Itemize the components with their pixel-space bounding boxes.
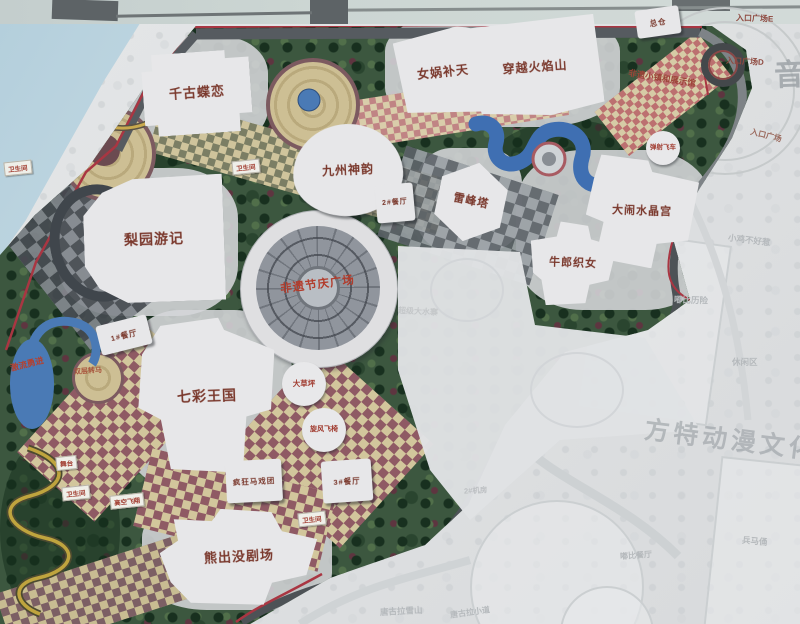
building-label-rest1: 1#餐厅 bbox=[110, 327, 139, 342]
map-text-entrance-e: 入口广场E bbox=[736, 12, 774, 24]
faded-text-jifang2: 2#机房 bbox=[464, 484, 488, 496]
map-text-jiliuyongjin: 激流勇进 bbox=[9, 354, 45, 374]
park-map-sign-photo: 千古蝶恋女娲补天穿越火焰山九州神韵梨园游记七彩王国熊出没剧场大闹水晶宫牛郎织女雷… bbox=[0, 0, 800, 624]
map-text-entrance-main: 入口广场 bbox=[749, 126, 783, 144]
building-label-xiong: 熊出没剧场 bbox=[204, 547, 275, 566]
building-rest1: 1#餐厅 bbox=[95, 314, 153, 356]
building-label-leifeng: 雷峰塔 bbox=[452, 192, 490, 212]
faded-text-tanggula-mt: 唐古拉雪山 bbox=[380, 604, 423, 618]
ride-circle-tanshefeiche: 弹射飞车 bbox=[646, 131, 680, 165]
building-label-shuijing: 大闹水晶宫 bbox=[612, 204, 672, 219]
building-label-zongcang: 总仓 bbox=[649, 16, 667, 27]
faded-text-xiuxianqu: 休闲区 bbox=[732, 356, 758, 368]
watermark-phase2-watermark: 方特动漫文化科技 bbox=[643, 410, 800, 474]
building-label-qicai: 七彩王国 bbox=[177, 387, 238, 406]
building-label-qiangu: 千古蝶恋 bbox=[169, 83, 226, 102]
building-liyuan: 梨园游记 bbox=[82, 174, 226, 305]
building-rest2: 2#餐厅 bbox=[374, 182, 415, 223]
building-zongcang: 总仓 bbox=[634, 5, 681, 39]
building-fengkuang: 疯狂马戏团 bbox=[225, 459, 283, 504]
ride-label-tanshefeiche: 弹射飞车 bbox=[650, 144, 676, 151]
facility-tag-gaokongfeixiang: 高空飞翔 bbox=[109, 492, 144, 509]
faded-text-dubi-restaurant: 嘟比餐厅 bbox=[620, 549, 653, 562]
building-rest3: 3#餐厅 bbox=[321, 458, 374, 503]
map-text-entrance-d: 入口广场D bbox=[726, 55, 764, 68]
faded-text-xiaoji: 小鸡不好惹 bbox=[727, 231, 771, 248]
ride-label-dacaoping: 大草坪 bbox=[293, 380, 316, 388]
facility-tag-weishengjian-3: 卫生间 bbox=[61, 485, 90, 502]
building-label-chuanyue: 穿越火焰山 bbox=[502, 58, 568, 77]
building-label-liyuan: 梨园游记 bbox=[124, 230, 185, 249]
building-label-rest2: 2#餐厅 bbox=[382, 198, 408, 209]
ride-circle-xuanfengfeiyi: 旋风飞椅 bbox=[302, 408, 346, 452]
building-label-rest3: 3#餐厅 bbox=[333, 476, 361, 487]
map-text-feiyi-plaza: 非遗节庆广场 bbox=[279, 271, 355, 296]
building-xiong: 熊出没剧场 bbox=[158, 504, 321, 610]
facility-tag-weishengjian-2: 卫生间 bbox=[231, 159, 260, 176]
watermark-yin-char: 音 bbox=[773, 49, 800, 94]
building-qicai: 七彩王国 bbox=[135, 316, 278, 477]
faded-text-tanggula-path: 唐古拉小道 bbox=[449, 604, 490, 620]
map-text-shuangcengzhuanma: 双层转马 bbox=[74, 365, 103, 377]
facility-tag-weishengjian-1: 卫生间 bbox=[3, 160, 32, 177]
facility-tag-wutai: 舞台 bbox=[55, 455, 77, 471]
building-qiangu: 千古蝶恋 bbox=[140, 48, 253, 137]
facility-tag-weishengjian-4: 卫生间 bbox=[297, 511, 326, 528]
building-chuanyue: 穿越火焰山 bbox=[465, 13, 606, 120]
faded-text-dubi-adventure: 嘟比历险 bbox=[674, 293, 708, 306]
ride-label-xuanfengfeiyi: 旋风飞椅 bbox=[310, 426, 338, 434]
faded-text-bingmayong: 兵马俑 bbox=[742, 534, 768, 548]
building-label-jiuzhou: 九州神韵 bbox=[322, 161, 375, 178]
faded-text-water-fort: 超级大水寨 bbox=[398, 305, 439, 318]
building-label-fengkuang: 疯狂马戏团 bbox=[233, 475, 276, 486]
building-leifeng: 雷峰塔 bbox=[425, 155, 518, 249]
building-label-niulang: 牛郎织女 bbox=[549, 257, 597, 272]
map-text-feiyi-town: 非遗小镇和展示馆 bbox=[627, 67, 696, 89]
building-label-nuwa: 女娲补天 bbox=[416, 62, 469, 82]
ride-circle-dacaoping: 大草坪 bbox=[282, 362, 326, 406]
label-layer: 千古蝶恋女娲补天穿越火焰山九州神韵梨园游记七彩王国熊出没剧场大闹水晶宫牛郎织女雷… bbox=[0, 0, 800, 624]
